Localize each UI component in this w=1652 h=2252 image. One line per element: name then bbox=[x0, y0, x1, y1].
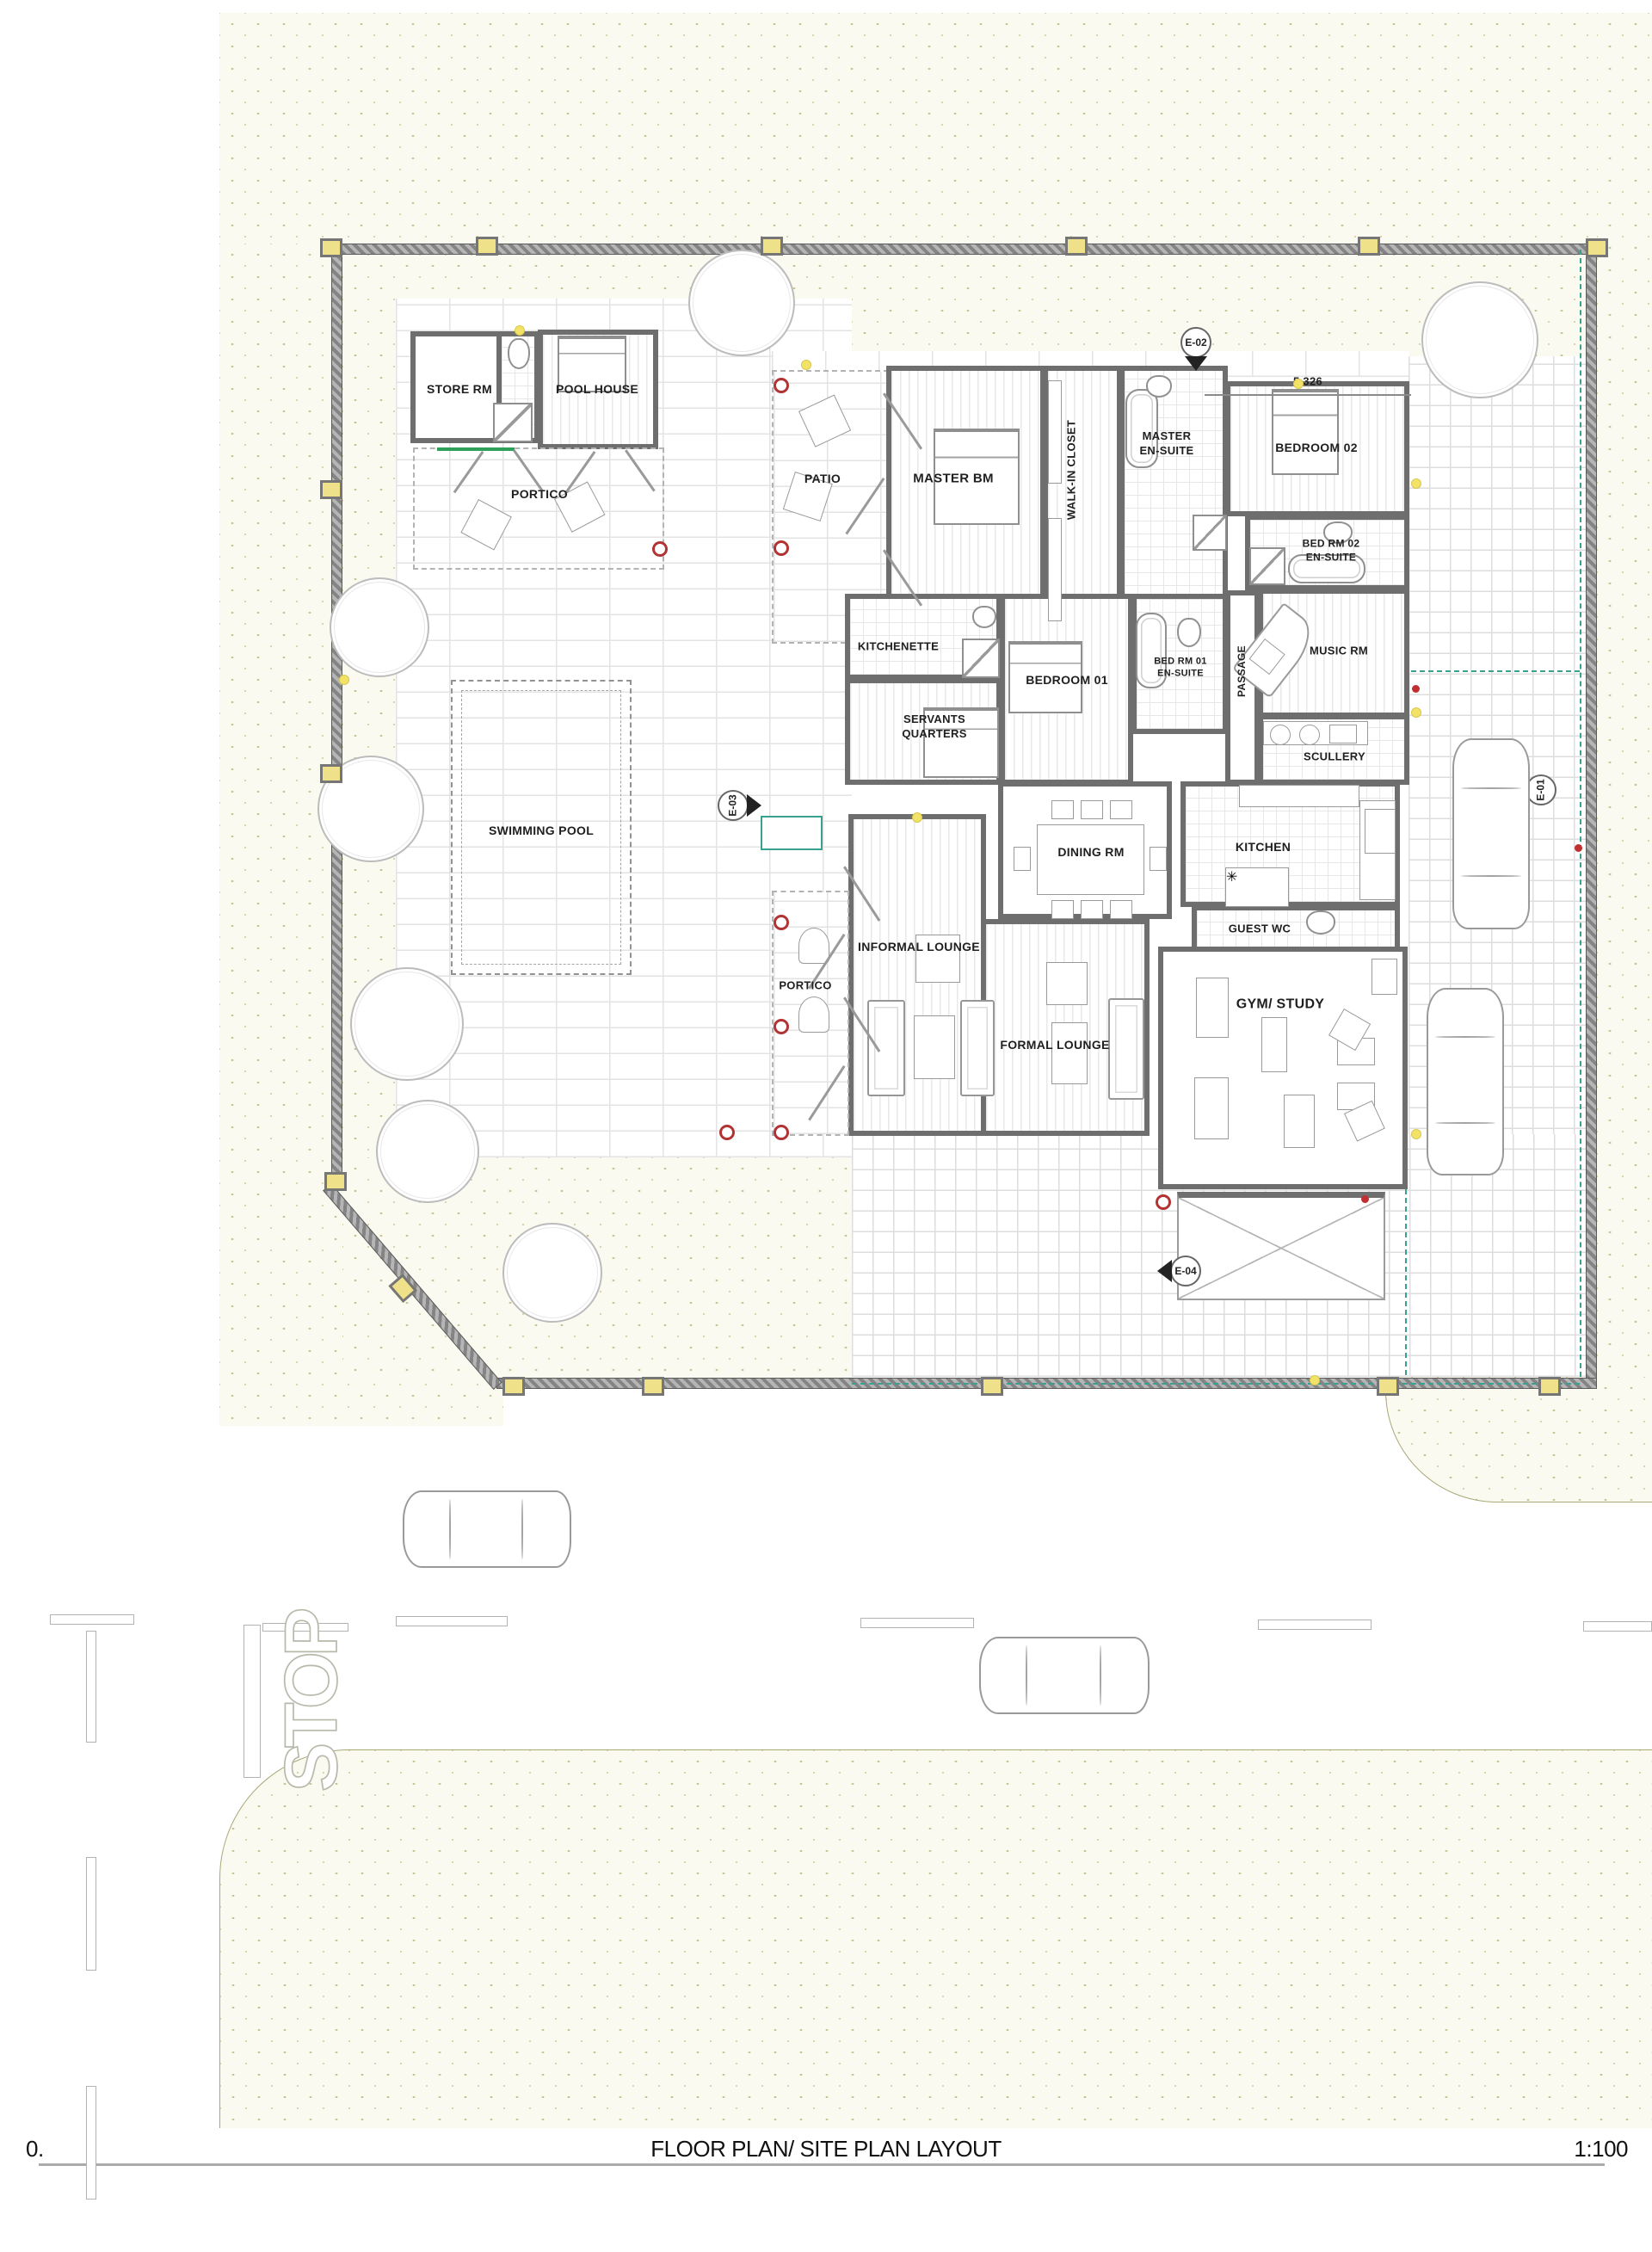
elevation-marker-e03: E-03 bbox=[718, 790, 749, 821]
boundary-pier bbox=[324, 1172, 347, 1191]
column-marker bbox=[1156, 1194, 1171, 1210]
room-label-scullery: SCULLERY bbox=[1304, 750, 1365, 765]
gym-machine bbox=[1194, 1077, 1229, 1139]
boundary-pier bbox=[642, 1377, 664, 1396]
toilet-guest-wc bbox=[1306, 910, 1335, 935]
dining-chair bbox=[1110, 800, 1132, 819]
room-label-servants-quarters: SERVANTS QUARTERS bbox=[902, 713, 966, 742]
tree bbox=[376, 1100, 479, 1203]
gym-side-table bbox=[1372, 959, 1397, 995]
column-marker bbox=[652, 541, 668, 557]
gym-treadmill bbox=[1284, 1095, 1315, 1148]
boundary-pier bbox=[476, 237, 498, 256]
room-label-store-rm: STORE RM bbox=[427, 381, 492, 397]
tree bbox=[688, 250, 795, 356]
light-fitting bbox=[1411, 1129, 1421, 1139]
setback-line-music bbox=[1411, 670, 1580, 672]
toilet-bedrm01 bbox=[1177, 618, 1201, 647]
column-marker bbox=[774, 540, 789, 556]
road-lane-dash bbox=[86, 1631, 96, 1743]
grass-verge-right bbox=[1385, 1377, 1652, 1502]
elevation-marker-e04: E-04 bbox=[1170, 1256, 1201, 1286]
portico-armchair bbox=[798, 928, 829, 964]
boundary-pier bbox=[1538, 1377, 1561, 1396]
sheet-number: 0. bbox=[26, 2136, 44, 2163]
kitchen-counter-top bbox=[1239, 785, 1359, 807]
survey-point bbox=[1575, 844, 1582, 852]
room-label-master-ensuite: MASTER EN-SUITE bbox=[1139, 429, 1193, 459]
room-label-bedrm01-ensuite: BED RM 01 EN-SUITE bbox=[1154, 656, 1206, 681]
sheet-scale: 1:100 bbox=[1574, 2136, 1628, 2163]
road-lane-dash bbox=[396, 1616, 508, 1626]
section-arrow-icon bbox=[1185, 356, 1207, 371]
sofa-informal bbox=[867, 1000, 905, 1096]
elevation-marker-e01: E-01 bbox=[1526, 774, 1556, 805]
room-label-patio: PATIO bbox=[804, 471, 841, 486]
coffee-table-formal bbox=[1051, 1022, 1088, 1084]
room-label-formal-lounge: FORMAL LOUNGE bbox=[1000, 1037, 1109, 1052]
room-label-guest-wc: GUEST WC bbox=[1229, 922, 1291, 937]
road-lane-dash bbox=[86, 1857, 96, 1971]
elevation-marker-e01-label: E-01 bbox=[1535, 779, 1547, 800]
dining-chair bbox=[1110, 900, 1132, 919]
coffee-table-informal bbox=[914, 1015, 955, 1079]
light-fitting bbox=[515, 325, 525, 336]
section-arrow-icon bbox=[747, 794, 761, 817]
elevation-marker-e02: E-02 bbox=[1180, 327, 1211, 358]
column-marker bbox=[774, 915, 789, 930]
light-fitting bbox=[1411, 707, 1421, 718]
elevation-marker-e04-label: E-04 bbox=[1174, 1265, 1196, 1277]
room-label-bedrm02-ensuite: BED RM 02 EN-SUITE bbox=[1303, 537, 1360, 564]
dining-chair bbox=[1150, 847, 1167, 871]
boundary-pier bbox=[320, 764, 342, 783]
road-lane-dash bbox=[50, 1614, 134, 1625]
road-lane-dash bbox=[1583, 1621, 1652, 1632]
room-label-pool-house: POOL HOUSE bbox=[556, 381, 638, 397]
tree bbox=[502, 1223, 602, 1323]
boundary-pier bbox=[1358, 237, 1380, 256]
sofa-informal bbox=[960, 1000, 995, 1096]
light-fitting bbox=[339, 675, 349, 685]
survey-point bbox=[1412, 685, 1420, 693]
room-label-swimming-pool: SWIMMING POOL bbox=[489, 823, 594, 838]
sofa-formal bbox=[1108, 998, 1144, 1100]
dining-chair bbox=[1051, 800, 1074, 819]
elevation-marker-e02-label: E-02 bbox=[1185, 336, 1206, 349]
boundary-pier bbox=[320, 238, 342, 257]
tree bbox=[330, 577, 429, 677]
sheet-title: FLOOR PLAN/ SITE PLAN LAYOUT bbox=[650, 2136, 1001, 2163]
closet-shelf bbox=[1048, 380, 1062, 484]
light-fitting bbox=[912, 812, 922, 823]
road-lane-dash bbox=[86, 2086, 96, 2200]
toilet-pool-house bbox=[508, 338, 530, 369]
boundary-pier bbox=[320, 480, 342, 499]
boundary-pier bbox=[761, 237, 783, 256]
boundary-wall-top bbox=[331, 244, 1597, 255]
light-fitting bbox=[1310, 1375, 1320, 1385]
stop-road-marking: STOP bbox=[264, 1613, 361, 1792]
kitchen-island: ✳ bbox=[1225, 867, 1289, 907]
scullery-appliance bbox=[1329, 725, 1357, 743]
gym-machine bbox=[1196, 978, 1229, 1038]
light-fitting bbox=[1411, 478, 1421, 489]
shower-pool-house bbox=[493, 403, 533, 442]
scullery-sink bbox=[1299, 725, 1320, 745]
column-marker bbox=[774, 1019, 789, 1034]
boundary-pier bbox=[1065, 237, 1088, 256]
road-lane-dash bbox=[860, 1618, 974, 1628]
scullery-sink bbox=[1270, 725, 1291, 745]
floor-plan-canvas: 0. FLOOR PLAN/ SITE PLAN LAYOUT 1:100 ✳5… bbox=[0, 0, 1652, 2252]
title-divider bbox=[39, 2163, 1605, 2166]
shower-master bbox=[1193, 515, 1227, 551]
setback-line-right bbox=[1580, 250, 1581, 1377]
room-label-bedroom-01: BEDROOM 01 bbox=[1026, 672, 1108, 688]
bed-bedroom02 bbox=[1272, 389, 1339, 475]
entry-canopy-roof bbox=[1177, 1192, 1385, 1300]
boundary-pier bbox=[981, 1377, 1003, 1396]
closet-shelf bbox=[1048, 518, 1062, 621]
column-marker bbox=[774, 1125, 789, 1140]
light-fitting bbox=[801, 360, 811, 370]
boundary-pier bbox=[1377, 1377, 1399, 1396]
boundary-wall-right bbox=[1586, 244, 1597, 1389]
store-rm-threshold bbox=[437, 447, 515, 451]
survey-point bbox=[1361, 1195, 1369, 1203]
stop-line bbox=[243, 1625, 261, 1778]
section-arrow-icon bbox=[1157, 1260, 1172, 1282]
column-marker bbox=[774, 378, 789, 393]
dining-chair bbox=[1081, 800, 1103, 819]
room-label-bedroom-02: BEDROOM 02 bbox=[1275, 440, 1358, 455]
column-marker bbox=[719, 1125, 735, 1140]
boundary-pier bbox=[502, 1377, 525, 1396]
room-label-kitchen: KITCHEN bbox=[1236, 839, 1291, 855]
car-street bbox=[403, 1490, 571, 1568]
area-portico-upper bbox=[413, 447, 664, 570]
grass-right-strip bbox=[1597, 13, 1652, 1385]
tree bbox=[350, 967, 464, 1081]
room-label-portico-lower: PORTICO bbox=[779, 979, 831, 994]
dining-chair bbox=[1014, 847, 1031, 871]
car-driveway bbox=[1427, 988, 1504, 1175]
toilet-master-ensuite bbox=[1146, 375, 1172, 398]
dining-chair bbox=[1051, 900, 1074, 919]
room-label-music-rm: MUSIC RM bbox=[1310, 645, 1368, 659]
dining-chair bbox=[1081, 900, 1103, 919]
car-driveway bbox=[1452, 738, 1530, 929]
room-label-master-bm: MASTER BM bbox=[913, 470, 994, 487]
grass-top-band bbox=[219, 13, 1652, 244]
gym-bench bbox=[1261, 1017, 1287, 1072]
portico-armchair bbox=[798, 996, 829, 1033]
shower-bedrm02 bbox=[1249, 547, 1285, 585]
room-label-dining-rm: DINING RM bbox=[1057, 844, 1124, 860]
car-street bbox=[979, 1637, 1150, 1714]
toilet-kitchenette bbox=[972, 606, 996, 628]
room-label-walk-in-closet: WALK-IN CLOSET bbox=[1065, 420, 1080, 520]
room-label-gym-study: GYM/ STUDY bbox=[1236, 996, 1325, 1015]
grass-left-strip bbox=[219, 244, 331, 1183]
room-label-portico-upper: PORTICO bbox=[511, 486, 568, 502]
elevation-marker-e03-label: E-03 bbox=[727, 794, 739, 816]
shower-kitchenette bbox=[962, 639, 1000, 678]
room-label-kitchenette: KITCHENETTE bbox=[858, 640, 939, 655]
pool-water-feature bbox=[761, 816, 823, 850]
setback-line-bottom bbox=[852, 1383, 1580, 1385]
road-lane-dash bbox=[1258, 1620, 1372, 1630]
boundary-pier bbox=[1586, 238, 1608, 257]
dimension-line bbox=[1205, 394, 1411, 396]
boundary-wall-left bbox=[331, 244, 342, 1188]
room-label-passage: PASSAGE bbox=[1236, 645, 1249, 697]
grass-bottom-band bbox=[219, 1749, 1652, 2128]
light-fitting bbox=[1293, 379, 1304, 389]
kitchen-stove bbox=[1365, 809, 1396, 854]
tree bbox=[1421, 281, 1538, 398]
room-label-informal-lounge: INFORMAL LOUNGE bbox=[858, 939, 980, 954]
armchair-formal bbox=[1046, 962, 1088, 1005]
